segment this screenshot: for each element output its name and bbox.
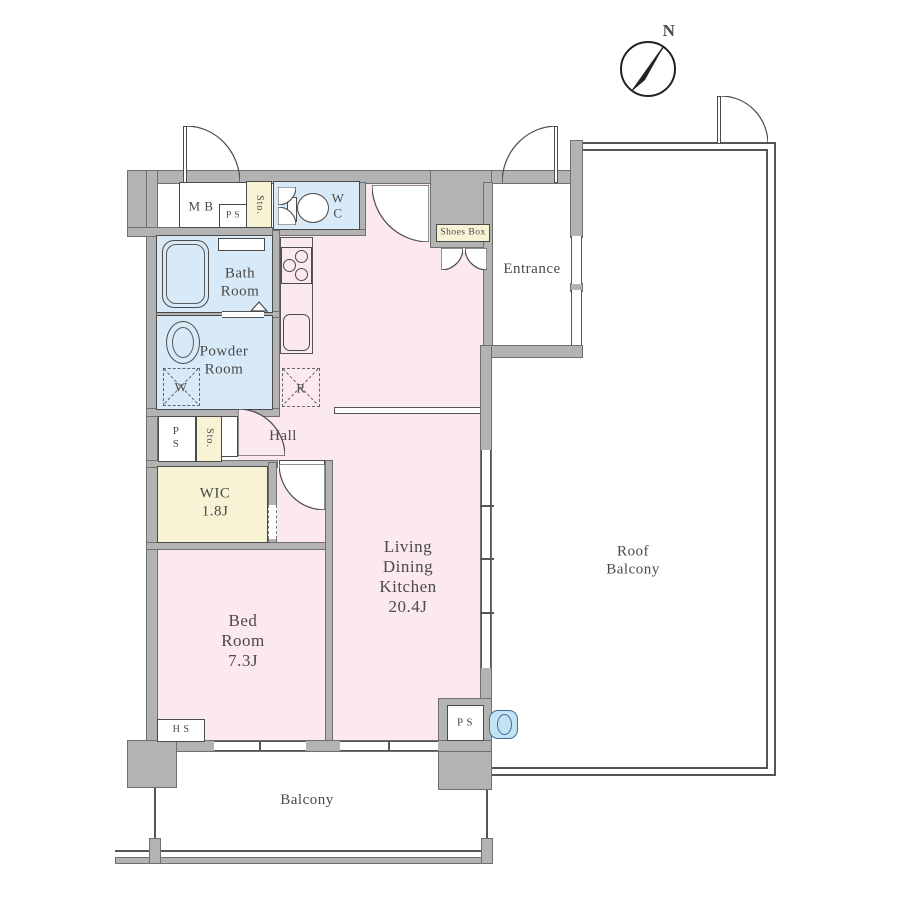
bath-door-marker: [250, 301, 268, 312]
mb-door-arc: [186, 126, 240, 183]
sliding-partition: [334, 407, 480, 414]
kitchen-door-arc: [372, 185, 429, 242]
balcony-wall-band: [115, 857, 493, 864]
compass-north-label: N: [663, 21, 676, 41]
wc-door-arc: [278, 187, 296, 205]
label-ps-top: P S: [226, 210, 240, 221]
label-mb: M B: [189, 198, 214, 213]
label-washer: W: [175, 379, 188, 394]
label-hs: H S: [173, 724, 190, 736]
roof-balcony-railing: [579, 149, 768, 151]
bath-counter: [218, 238, 265, 251]
balcony-post: [149, 838, 161, 864]
toilet-bowl: [297, 193, 329, 223]
wall-pillar-entrance-right: [570, 140, 583, 238]
kitchen-sink: [283, 314, 310, 351]
roof-gate-arc: [721, 96, 768, 144]
powder-sink-inner: [172, 327, 194, 358]
label-bath: Bath Room: [221, 265, 260, 300]
window-mullion: [259, 741, 261, 751]
label-shoes-box: Shoes Box: [440, 227, 485, 238]
wall-block-bottomleft: [127, 740, 177, 788]
hall-door-leaf: [221, 416, 238, 457]
compass: [618, 36, 682, 100]
wc-door-arc: [278, 207, 296, 225]
window-mullion: [480, 612, 494, 614]
bedroom-door-arc: [279, 464, 325, 510]
label-entrance: Entrance: [503, 261, 560, 279]
balcony-railing: [154, 788, 156, 838]
label-roof-balcony: Roof Balcony: [606, 543, 660, 578]
stove-burner-icon: [295, 250, 308, 263]
label-bedroom: Bed Room 7.3J: [221, 611, 265, 671]
window: [571, 290, 582, 345]
window-mullion: [388, 741, 390, 751]
stove-burner-icon: [283, 259, 296, 272]
compass-needle-icon: [618, 36, 682, 100]
wall: [325, 460, 333, 742]
label-hall: Hall: [269, 428, 297, 446]
entrance-door-arc: [502, 126, 557, 183]
bathtub-inner: [166, 244, 205, 304]
stove-burner-icon: [295, 268, 308, 281]
stove: [281, 247, 312, 284]
label-powder: Powder Room: [200, 343, 249, 378]
wic-opening: [268, 505, 277, 539]
wall: [146, 542, 333, 550]
shoesbox-door-arc: [441, 248, 463, 270]
label-sto-top: Sto.: [253, 195, 265, 215]
label-balcony: Balcony: [280, 792, 334, 810]
roof-balcony-railing: [766, 149, 768, 769]
bath-entry: [222, 311, 264, 318]
window-mullion: [480, 558, 494, 560]
label-ps-mid: P S: [173, 425, 180, 451]
label-ps-bottom: P S: [457, 717, 473, 730]
wall: [272, 230, 280, 413]
balcony-railing: [486, 790, 488, 838]
window: [571, 236, 582, 284]
label-wc: W C: [332, 191, 345, 222]
label-fridge: R: [296, 380, 305, 395]
label-wic: WIC 1.8J: [200, 485, 231, 520]
balcony-post: [481, 838, 493, 864]
roof-balcony-railing: [490, 774, 776, 776]
roof-balcony-railing: [774, 142, 776, 776]
balcony-railing: [115, 850, 493, 852]
label-ldk: Living Dining Kitchen 20.4J: [379, 537, 436, 617]
outdoor-faucet-basin: [497, 714, 512, 735]
window-mullion: [480, 505, 494, 507]
label-sto-mid: Sto.: [203, 428, 215, 448]
roof-balcony-railing: [492, 767, 768, 769]
shoesbox-door-arc: [465, 248, 487, 270]
floorplan: N M B P S Sto. W C Shoes Box Entrance Ba…: [0, 0, 900, 900]
wall: [483, 345, 583, 358]
